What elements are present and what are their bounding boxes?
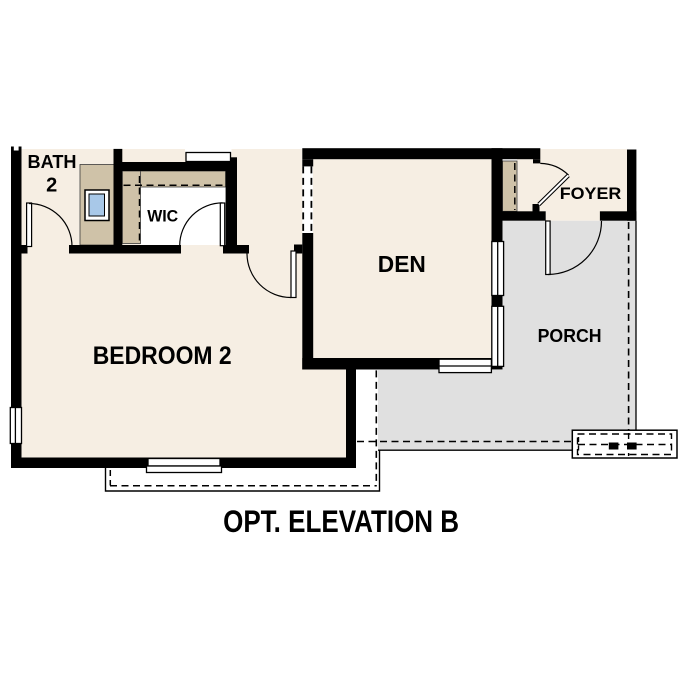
svg-text:BEDROOM 2: BEDROOM 2 <box>93 342 232 370</box>
svg-text:BATH: BATH <box>28 152 77 172</box>
svg-text:WIC: WIC <box>147 208 178 226</box>
svg-text:OPT. ELEVATION B: OPT. ELEVATION B <box>223 503 459 539</box>
svg-text:DEN: DEN <box>378 251 426 277</box>
svg-text:PORCH: PORCH <box>538 326 602 346</box>
svg-text:FOYER: FOYER <box>560 185 622 203</box>
svg-text:2: 2 <box>46 175 57 197</box>
